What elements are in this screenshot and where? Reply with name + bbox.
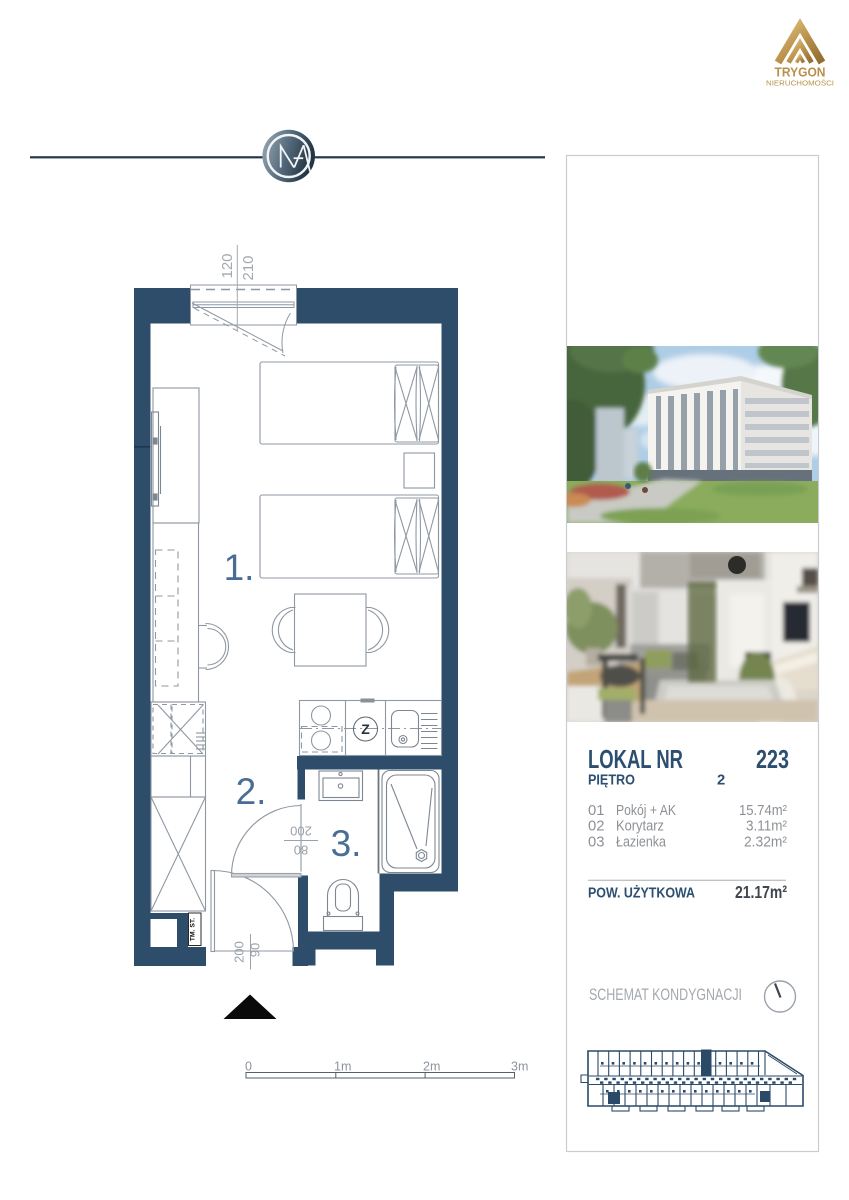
svg-text:223: 223 — [756, 746, 789, 774]
svg-text:Z: Z — [361, 721, 370, 737]
svg-text:PIĘTRO: PIĘTRO — [588, 773, 635, 789]
svg-text:03: 03 — [588, 834, 604, 850]
svg-text:3.11m²: 3.11m² — [746, 819, 787, 835]
svg-text:2m: 2m — [423, 1060, 440, 1074]
svg-text:Korytarz: Korytarz — [616, 819, 664, 835]
svg-text:2: 2 — [717, 773, 725, 789]
svg-text:200: 200 — [232, 941, 247, 963]
svg-text:90: 90 — [248, 943, 263, 957]
svg-text:2.: 2. — [236, 771, 267, 812]
svg-text:02: 02 — [588, 819, 604, 835]
svg-text:3m: 3m — [511, 1060, 528, 1074]
svg-text:1m: 1m — [334, 1060, 351, 1074]
svg-text:210: 210 — [240, 255, 257, 280]
svg-text:SCHEMAT KONDYGNACJI: SCHEMAT KONDYGNACJI — [589, 986, 742, 1004]
svg-text:TM. ST.: TM. ST. — [190, 918, 197, 942]
svg-text:01: 01 — [588, 803, 604, 819]
svg-text:1.: 1. — [224, 547, 255, 588]
svg-text:200: 200 — [290, 824, 312, 839]
svg-text:120: 120 — [219, 253, 236, 278]
svg-text:15.74m²: 15.74m² — [739, 803, 787, 819]
svg-text:21.17m²: 21.17m² — [735, 882, 787, 902]
svg-text:NIERUCHOMOŚCI: NIERUCHOMOŚCI — [766, 79, 834, 88]
svg-text:80: 80 — [294, 843, 308, 858]
svg-text:0: 0 — [245, 1060, 252, 1074]
svg-text:2.32m²: 2.32m² — [744, 834, 787, 850]
svg-text:Łazienka: Łazienka — [616, 834, 667, 850]
svg-text:TRYGON: TRYGON — [775, 66, 826, 80]
svg-text:POW. UŻYTKOWA: POW. UŻYTKOWA — [588, 885, 695, 902]
svg-text:Pokój + AK: Pokój + AK — [616, 803, 676, 819]
svg-text:3.: 3. — [331, 823, 362, 864]
svg-text:LOKAL NR: LOKAL NR — [588, 746, 683, 774]
